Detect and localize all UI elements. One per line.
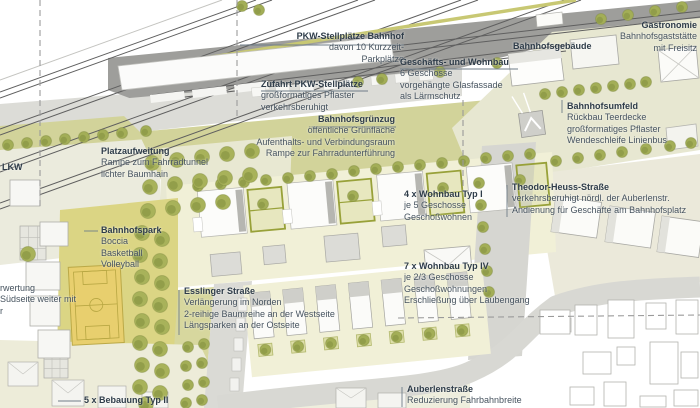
label-line: PKW-Stellplätze Bahnhof [297, 31, 404, 42]
site-plan-canvas: PKW-Stellplätze Bahnhof davon 10 Kurzzei… [0, 0, 700, 408]
label-line: Verlängerung im Norden [184, 297, 335, 308]
label-line: verkehrsberuhigt nördl. der Auberlenstr. [512, 193, 686, 204]
label-line: Südseite weiter mit [0, 294, 76, 305]
label-line: lichter Baumhain [101, 169, 208, 180]
label-line: 2-reihige Baumreihe an der Westseite [184, 309, 335, 320]
label-clipped-west: rwertung Südseite weiter mit r [0, 283, 76, 317]
label-line: Esslinger Straße [184, 286, 335, 297]
label-line: Bahnhofspark [101, 225, 162, 236]
label-line: Rückbau Teerdecke [567, 112, 667, 123]
label-line: großformatiges Pflaster [261, 90, 363, 101]
label-line: Bahnhofsgaststätte [620, 31, 697, 42]
label-wohnbau-typ4: 7 x Wohnbau Typ IV je 2/3 Geschosse Gesc… [404, 261, 530, 307]
label-line: Zufahrt PKW-Stellplätze [261, 79, 363, 90]
label-line: Längsparken an der Ostseite [184, 320, 335, 331]
label-bahnhofsgebaeude: Bahnhofsgebäude [513, 41, 592, 52]
label-line: Rampe zum Fahrradtunnel [101, 157, 208, 168]
label-line: Boccia [101, 236, 162, 247]
label-line: Auberlenstraße [407, 384, 522, 395]
label-line: rwertung [0, 283, 76, 294]
label-line: großformatiges Pflaster [567, 124, 667, 135]
label-line: Bahnhofsumfeld [567, 101, 667, 112]
label-line: Reduzierung Fahrbahnbreite [407, 395, 522, 406]
label-gastronomie: Gastronomie Bahnhofsgaststätte mit Freis… [620, 20, 697, 54]
label-line: Geschäfts- und Wohnbau [400, 57, 509, 68]
basketball-court [68, 265, 124, 346]
label-lkw: LKW [2, 162, 23, 173]
label-line: als Lärmschutz [400, 91, 509, 102]
label-pkw-stellplaetze: PKW-Stellplätze Bahnhof davon 10 Kurzzei… [297, 31, 404, 65]
label-line: LKW [2, 162, 23, 173]
label-esslinger-strasse: Esslinger Straße Verlängerung im Norden … [184, 286, 335, 332]
label-line: Rampe zur Fahrradunterführung [256, 148, 395, 159]
label-platzaufweitung: Platzaufweitung Rampe zum Fahrradtunnel … [101, 146, 208, 180]
label-line: Volleyball [101, 259, 162, 270]
label-line: 7 x Wohnbau Typ IV [404, 261, 530, 272]
label-line: mit Freisitz [620, 43, 697, 54]
label-line: 6 Geschosse [400, 68, 509, 79]
label-bahnhofsgruenzug: Bahnhofsgrünzug öffentliche Grünfläche A… [256, 114, 395, 160]
label-bebauung-typ2: 5 x Bebauung Typ II [84, 395, 168, 406]
label-auberlenstrasse: Auberlenstraße Reduzierung Fahrbahnbreit… [407, 384, 522, 407]
label-line: Basketball [101, 248, 162, 259]
label-line: je 2/3 Geschosse [404, 272, 530, 283]
label-line: r [0, 306, 76, 317]
label-zufahrt: Zufahrt PKW-Stellplätze großformatiges P… [261, 79, 363, 113]
label-line: vorgehängte Glasfassade [400, 80, 509, 91]
label-wohnbau-typ1: 4 x Wohnbau Typ I je 5 Geschosse Geschoß… [404, 189, 483, 223]
label-theodor-heuss-strasse: Theodor-Heuss-Straße verkehrsberuhigt nö… [512, 182, 686, 216]
label-line: 5 x Bebauung Typ II [84, 395, 168, 406]
label-line: Aufenthalts- und Verbindungsraum [256, 137, 395, 148]
label-bahnhofspark: Bahnhofspark Boccia Basketball Volleybal… [101, 225, 162, 271]
label-line: davon 10 Kurzzeit- [297, 42, 404, 53]
label-line: Bahnhofsgrünzug [256, 114, 395, 125]
label-line: Gastronomie [620, 20, 697, 31]
label-line: Theodor-Heuss-Straße [512, 182, 686, 193]
label-line: Platzaufweitung [101, 146, 208, 157]
label-line: Bahnhofsgebäude [513, 41, 592, 52]
label-bahnhofsumfeld: Bahnhofsumfeld Rückbau Teerdecke großfor… [567, 101, 667, 147]
label-line: Geschoßwohnen [404, 212, 483, 223]
label-line: Erschließung über Laubengang [404, 295, 530, 306]
label-line: je 5 Geschosse [404, 200, 483, 211]
label-geschaefts-wohnbau: Geschäfts- und Wohnbau 6 Geschosse vorge… [400, 57, 509, 103]
label-line: Andienung für Geschäfte am Bahnhofsplatz [512, 205, 686, 216]
label-line: Geschoßwohnungen [404, 284, 530, 295]
label-line: verkehrsberuhigt [261, 102, 363, 113]
label-line: Wendeschleife Linienbus [567, 135, 667, 146]
label-line: 4 x Wohnbau Typ I [404, 189, 483, 200]
label-line: öffentliche Grünfläche [256, 125, 395, 136]
label-line: Parkplätze [297, 54, 404, 65]
